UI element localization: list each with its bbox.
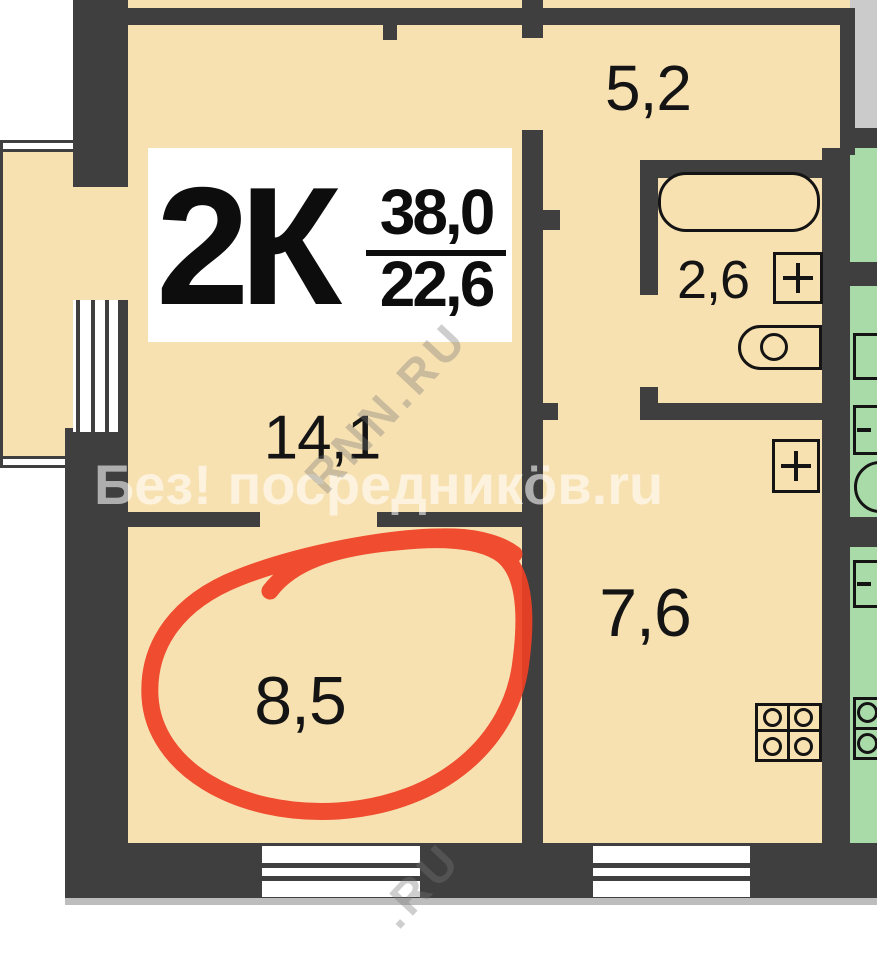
stove-divider-h bbox=[755, 729, 822, 732]
neighbor-stove-burner-1 bbox=[857, 702, 877, 723]
stove-burner-1 bbox=[763, 708, 782, 727]
kitchen-sink-cross-v bbox=[794, 451, 798, 481]
wall-left-upper bbox=[73, 0, 128, 187]
floor-hallway bbox=[543, 25, 840, 160]
watermark-text: Без! посредникöв.ru bbox=[94, 452, 663, 517]
area-living-label: 22,6 bbox=[366, 252, 506, 316]
area-total-label: 38,0 bbox=[366, 180, 506, 256]
stove-divider-v bbox=[787, 703, 790, 762]
balcony-window-top-line1 bbox=[0, 140, 73, 143]
room-area-kitchen: 7,6 bbox=[599, 574, 691, 652]
wall-hallway-stub bbox=[543, 210, 560, 230]
neighbor-wall-band-2 bbox=[850, 517, 877, 547]
wall-right-band bbox=[840, 128, 877, 148]
window-room85-bar1 bbox=[262, 846, 420, 863]
window-kitchen-bar1 bbox=[593, 846, 750, 863]
balcony-window-mullion-1 bbox=[76, 300, 80, 432]
room-area-highlighted: 8,5 bbox=[254, 662, 346, 740]
bathtub-icon bbox=[658, 172, 820, 232]
wall-right-main bbox=[822, 148, 850, 843]
balcony-window-frame-right bbox=[118, 300, 128, 434]
floor-entry-door-opening bbox=[522, 38, 543, 130]
balcony-window-mullion-2 bbox=[91, 300, 95, 432]
wall-top bbox=[112, 8, 855, 25]
room-area-bathroom: 2,6 bbox=[677, 249, 749, 311]
plan-title-box: 2К 38,0 22,6 bbox=[148, 148, 512, 342]
wall-bottom-shadow bbox=[65, 898, 877, 905]
wall-entry-stub bbox=[383, 25, 397, 40]
neighbor-sink-cross bbox=[857, 428, 871, 432]
apartment-type-label: 2К bbox=[156, 162, 332, 330]
balcony-window-top-line2 bbox=[0, 149, 73, 152]
wall-kitchen-door-stub bbox=[543, 403, 558, 420]
neighbor-sink2-cross bbox=[857, 582, 871, 586]
wall-bathroom-bottom bbox=[640, 403, 822, 420]
floor-balcony bbox=[0, 152, 73, 456]
bathroom-sink-cross-v bbox=[796, 263, 800, 293]
window-kitchen-bar3 bbox=[593, 881, 750, 897]
floor-plan: 2К 38,0 22,6 5,2 2,6 14,1 8,5 7,6 Без! п… bbox=[0, 0, 877, 960]
balcony-window-mullion-3 bbox=[105, 300, 109, 432]
balcony-rail-left bbox=[0, 140, 3, 468]
balcony-window-bottom-line2 bbox=[0, 465, 73, 468]
neighbor-stove-burner-2 bbox=[857, 733, 877, 754]
toilet-flush-circle bbox=[760, 333, 788, 361]
balcony-window-bottom-line1 bbox=[0, 456, 73, 459]
neighbor-fixture-box-icon bbox=[853, 333, 877, 380]
neighbor-wall-band-1 bbox=[850, 262, 877, 286]
wall-bathroom-left bbox=[640, 160, 658, 295]
room-area-hallway: 5,2 bbox=[605, 51, 691, 125]
window-kitchen-bar2 bbox=[593, 868, 750, 876]
wall-center-top-stub bbox=[522, 0, 543, 38]
stove-burner-2 bbox=[794, 708, 813, 727]
floor-balcony-door-opening bbox=[73, 187, 128, 300]
neighbor-stove-divider bbox=[853, 727, 877, 730]
stove-burner-4 bbox=[794, 737, 813, 756]
stove-burner-3 bbox=[763, 737, 782, 756]
